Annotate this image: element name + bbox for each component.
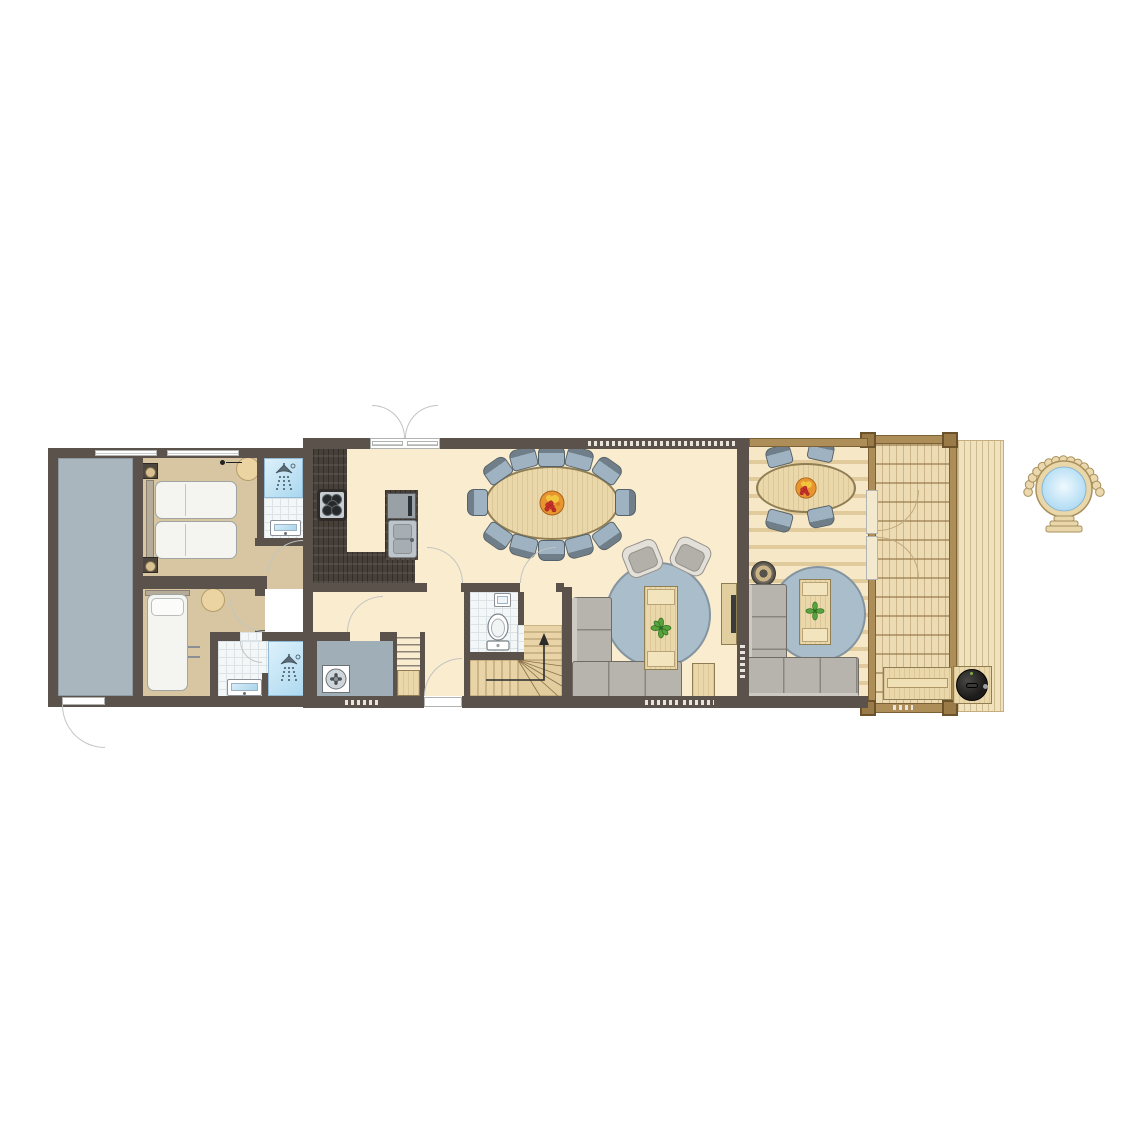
window (167, 450, 239, 456)
washbasin (227, 679, 262, 696)
wall-lamp-arm (226, 462, 242, 463)
coffee-table-shelf (647, 651, 675, 667)
toilet-icon (484, 611, 512, 655)
deck-door-opening (866, 536, 878, 580)
plant-icon (805, 601, 825, 621)
bbq-lid-handle (966, 683, 978, 688)
door-swing-arc (372, 405, 405, 438)
double-bed-headboard (146, 480, 154, 560)
window-dashes (645, 700, 678, 705)
nightstand (141, 463, 158, 479)
bbq-knob (983, 684, 988, 689)
wall (461, 583, 470, 592)
door-opening (518, 625, 524, 652)
wall (218, 632, 240, 641)
hand-basin (494, 593, 511, 607)
wall (255, 589, 265, 596)
stool (201, 588, 225, 612)
coffee-table-shelf (802, 582, 828, 596)
window-dashes (345, 700, 379, 705)
door-swing-arc (62, 705, 105, 748)
door-opening (520, 583, 556, 592)
window-dashes (740, 645, 745, 678)
door-opening (240, 632, 262, 641)
wall (262, 673, 268, 696)
door-opening (350, 632, 380, 641)
wall (317, 632, 350, 641)
single-bed-pillow (151, 598, 184, 616)
french-door-leaf (407, 441, 438, 446)
shower-icon (276, 651, 302, 685)
bench-slat (887, 678, 948, 688)
stove (317, 489, 347, 521)
closet-shelves (397, 637, 420, 668)
bed-rail (188, 656, 200, 658)
dining-chair (467, 489, 488, 516)
door-swing-arc (405, 405, 438, 438)
wall (393, 632, 397, 696)
wall-lamp-icon (220, 460, 225, 465)
door-opening (267, 576, 303, 589)
veranda-corner-sofa (747, 657, 859, 698)
wall (312, 632, 317, 696)
pillow-seam (185, 524, 186, 556)
window (95, 450, 157, 456)
entrance-door-opening (424, 697, 462, 707)
veranda-corner-sofa (747, 584, 787, 664)
pillow-seam (185, 484, 186, 516)
kitchen-sink (388, 520, 417, 558)
veranda-edge-beam (749, 438, 868, 447)
window-dashes (893, 705, 913, 710)
dining-chair (538, 446, 565, 467)
wall (143, 576, 267, 589)
nightstand (141, 557, 158, 573)
wall (303, 438, 370, 449)
wall (257, 458, 264, 538)
wall (210, 632, 218, 696)
french-door-leaf (372, 441, 403, 446)
storage-door-opening (62, 697, 105, 705)
wall (470, 583, 520, 592)
fruit-bowl-icon (795, 477, 817, 499)
fan-icon (324, 667, 348, 691)
wall (464, 592, 470, 696)
bbq-vent (970, 672, 973, 675)
storage-room-floor (58, 458, 133, 696)
dining-chair (615, 489, 636, 516)
wall (749, 696, 868, 708)
double-bed-mattress (155, 481, 237, 519)
window-dashes (588, 441, 735, 446)
wall (464, 652, 524, 660)
double-bed-mattress (155, 521, 237, 559)
washbasin (270, 520, 301, 536)
wall (562, 587, 572, 708)
coffee-table-shelf (647, 589, 675, 605)
pergola-post (942, 432, 958, 448)
wall (380, 632, 393, 641)
floor-plan (0, 0, 1145, 1145)
wall (48, 448, 58, 706)
wall (133, 448, 143, 706)
door-opening (427, 583, 461, 592)
tv (731, 595, 736, 633)
wall (518, 592, 524, 625)
fire-bowl (751, 561, 776, 586)
closet (397, 670, 420, 696)
bed-rail (188, 646, 200, 648)
pergola-beam (949, 444, 957, 703)
hot-tub-icon (1018, 443, 1110, 539)
coffee-table-shelf (802, 628, 828, 642)
wall (313, 583, 427, 592)
deck-door-opening (866, 490, 878, 534)
wall (262, 632, 312, 641)
oven (387, 493, 416, 519)
side-table (692, 663, 715, 697)
plant-icon (650, 617, 672, 639)
fruit-bowl-icon (539, 490, 565, 516)
shower-icon (271, 460, 297, 494)
window-dashes (683, 700, 714, 705)
